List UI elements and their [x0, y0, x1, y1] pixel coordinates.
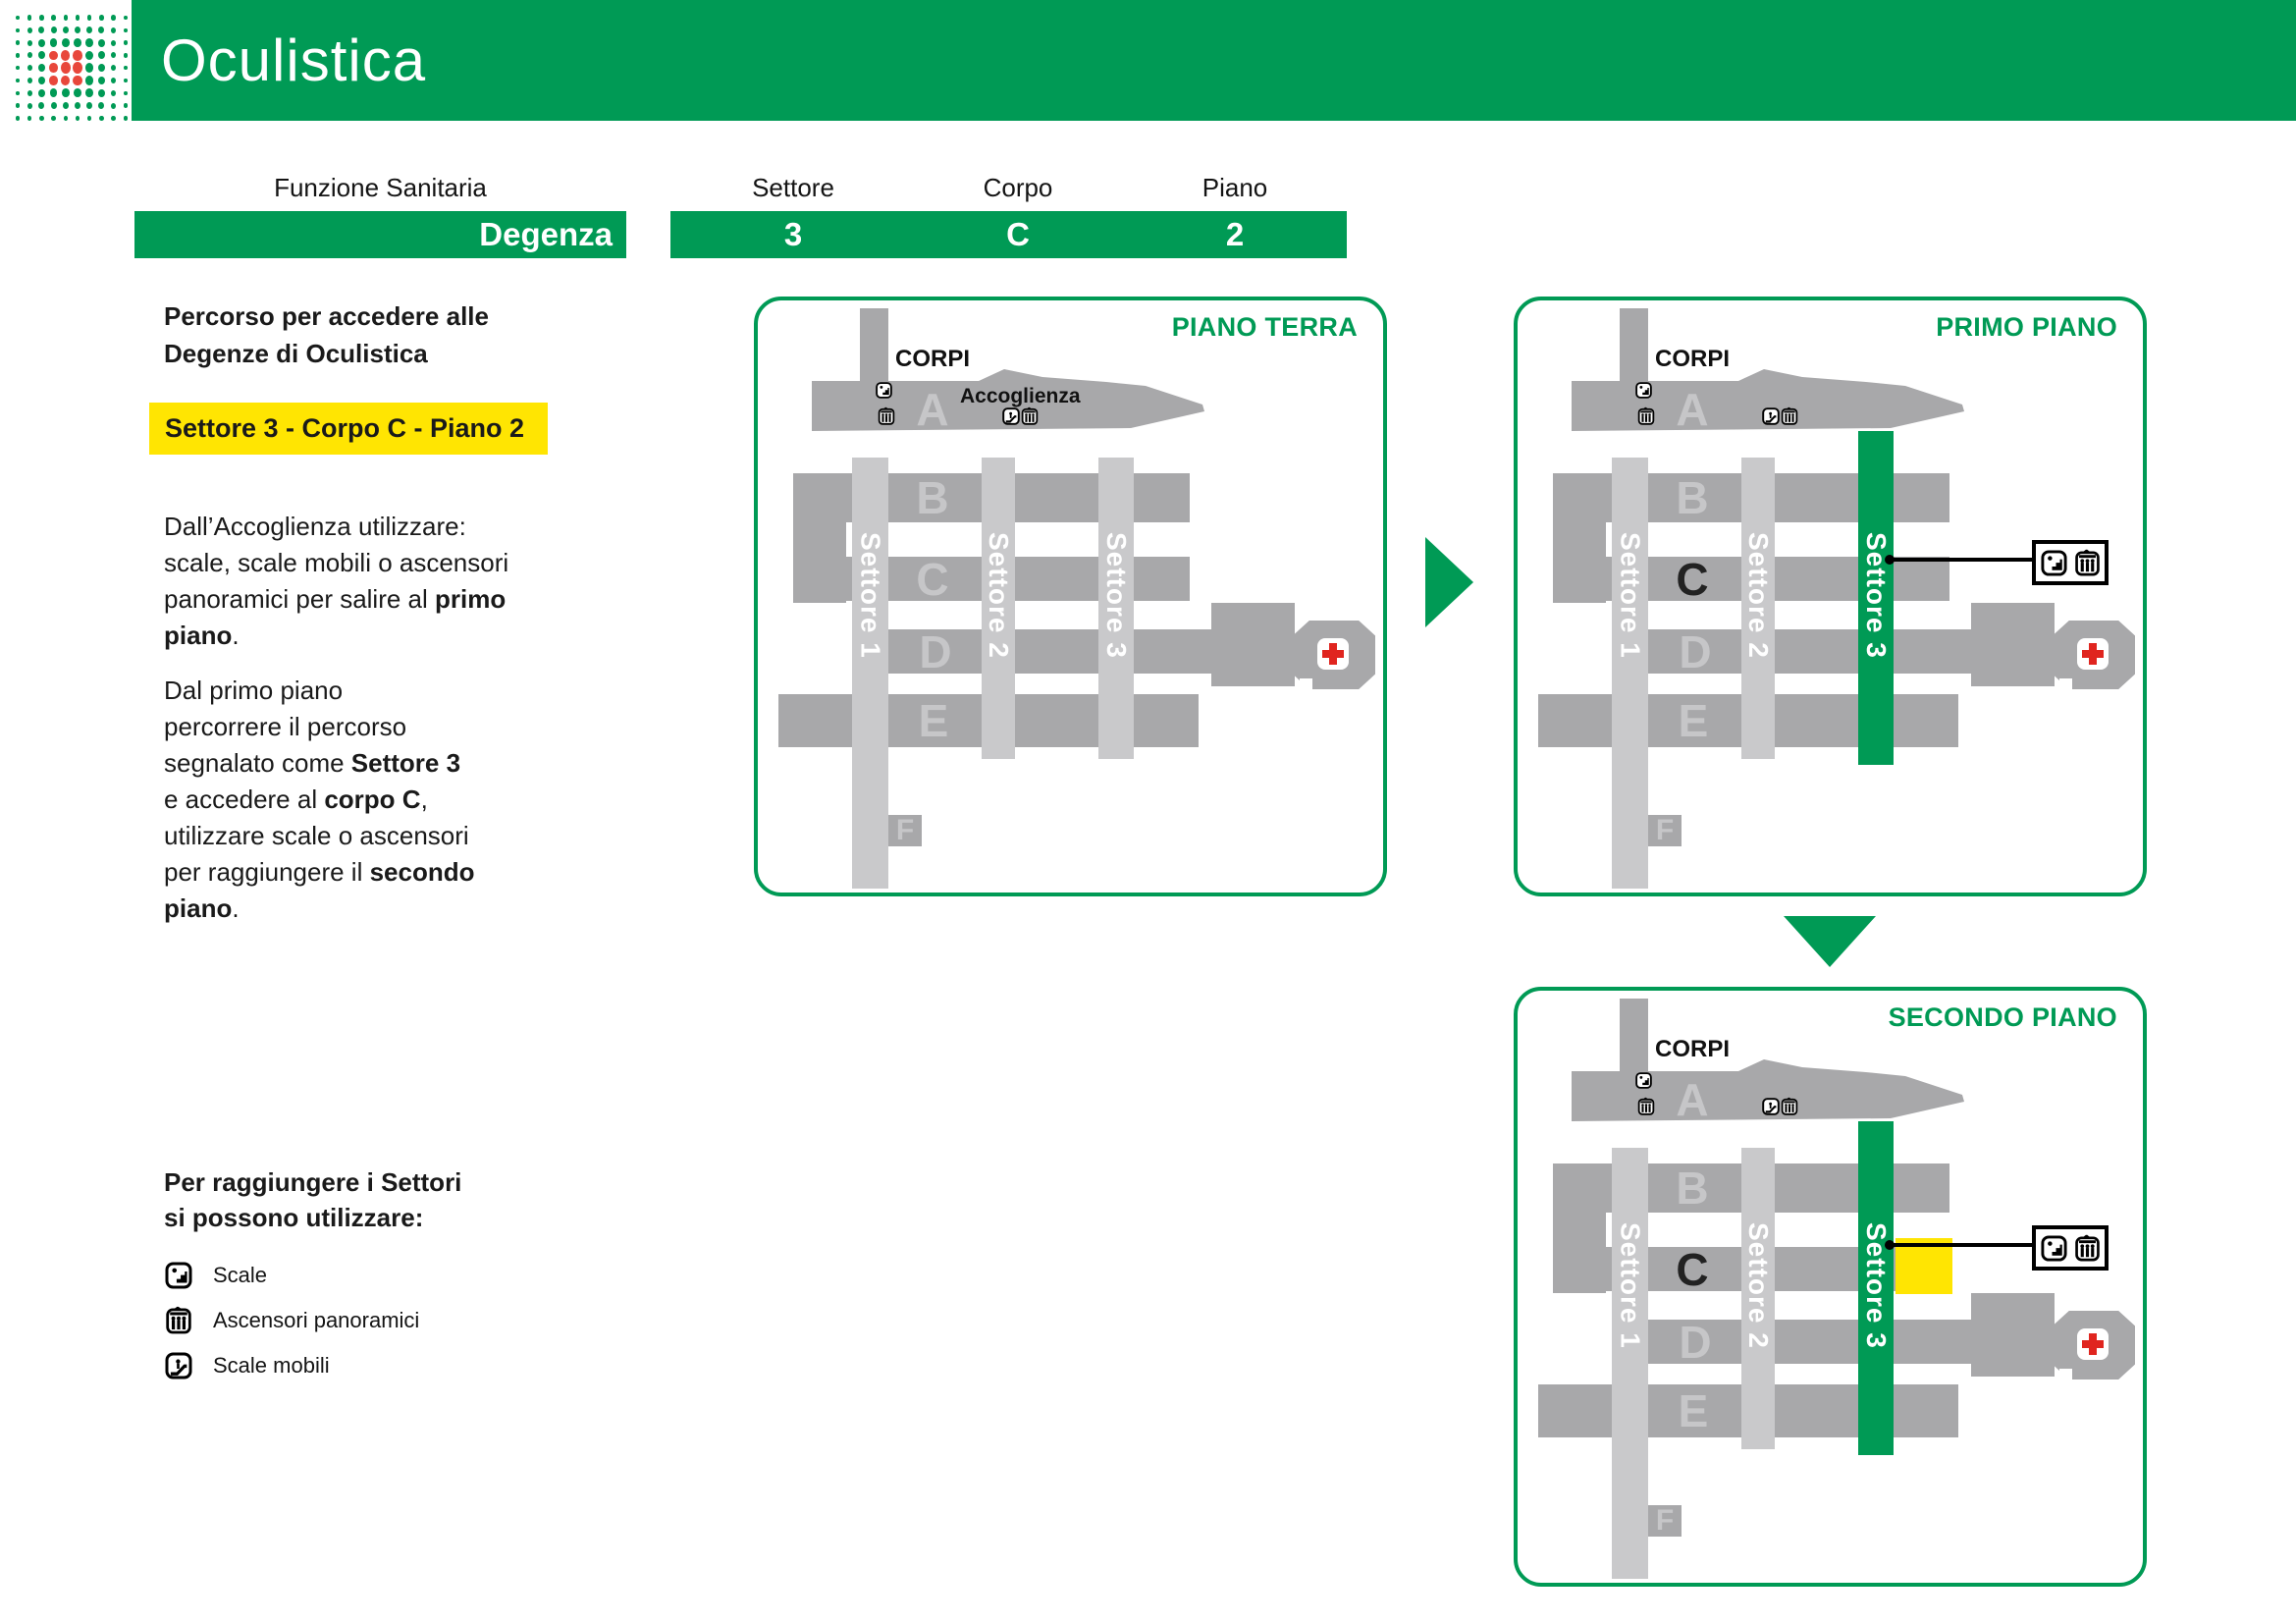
- sector-label: Settore 2: [983, 532, 1014, 659]
- floor-plan: Settore 1Settore 2Settore 3FABCDECORPI: [1518, 300, 2143, 893]
- floor-column-header: Piano: [1137, 173, 1333, 203]
- floor-panel-secondo-piano: Settore 1Settore 2Settore 3FABCDECORPI S…: [1514, 987, 2147, 1587]
- logo-green-dot: [111, 40, 116, 46]
- sector-value: 3: [695, 211, 891, 258]
- panoramic-elevator-icon: [1021, 406, 1039, 426]
- emergency-wing-notch: [2059, 678, 2072, 689]
- logo-green-dot: [51, 27, 57, 33]
- logo-green-dot: [124, 40, 128, 44]
- corpo-c-letter: C: [1665, 1247, 1720, 1291]
- corpo-a-letter: A: [905, 385, 960, 434]
- logo-green-dot: [16, 53, 20, 57]
- escalator-icon: [164, 1351, 193, 1380]
- corpo-b-letter: B: [1665, 1163, 1720, 1213]
- logo-green-dot: [16, 16, 20, 20]
- logo-green-dot: [98, 39, 105, 47]
- panoramic-elevator-icon: [1637, 1097, 1655, 1116]
- legend: Scale Ascensori panoramici Scale mobili: [164, 1261, 419, 1396]
- logo-green-dot: [85, 88, 93, 97]
- logo-green-dot: [39, 15, 44, 20]
- logo-green-dot: [39, 116, 44, 121]
- logo-green-dot: [111, 90, 116, 96]
- logo-green-dot: [98, 102, 104, 109]
- sector-strip-label: Settore 2: [1741, 467, 1775, 723]
- corpo-f-letter: F: [1648, 815, 1682, 846]
- corpo-a-letter: A: [1665, 1075, 1720, 1124]
- floor-plan: Settore 1Settore 2Settore 3FABCDECORPI: [1518, 991, 2143, 1583]
- logo-green-dot: [16, 66, 20, 70]
- logo-green-dot: [124, 91, 128, 95]
- emergency-wing-notch: [2059, 1369, 2072, 1380]
- panoramic-elevator-icon: [2074, 549, 2101, 577]
- logo-red-dot: [73, 76, 81, 86]
- logo-green-dot: [16, 79, 20, 82]
- logo-red-dot: [61, 76, 70, 86]
- logo-green-dot: [38, 27, 44, 33]
- corpi-label: CORPI: [895, 346, 1013, 371]
- logo-green-dot: [50, 88, 58, 97]
- header-bar: Oculistica: [132, 0, 2296, 121]
- stairs-icon: [876, 381, 892, 400]
- corpo-f-letter: F: [1648, 1505, 1682, 1537]
- logo-green-dot: [76, 15, 80, 20]
- corpo-a-stem: [1620, 999, 1648, 1073]
- logo-green-dot: [111, 103, 116, 109]
- emergency-wing-notch: [1300, 678, 1312, 689]
- logo-green-dot: [99, 116, 104, 121]
- sector-strip-label: Settore 1: [1612, 467, 1648, 723]
- floor-title: SECONDO PIANO: [1889, 1002, 2117, 1033]
- corpo-d-letter: D: [908, 629, 963, 674]
- stairs-icon: [2041, 1234, 2067, 1263]
- sector-strip-label: Settore 1: [1612, 1158, 1648, 1413]
- sector-strip-label: Settore 1: [852, 467, 888, 723]
- logo-green-dot: [85, 51, 93, 61]
- logo-green-dot: [64, 15, 69, 20]
- logo-green-dot: [16, 103, 20, 107]
- logo-red-dot: [73, 62, 82, 74]
- logo-green-dot: [51, 15, 56, 20]
- logo-green-dot: [38, 89, 45, 97]
- logo-green-dot: [74, 88, 81, 97]
- sector-strip-label: Settore 3: [1098, 467, 1134, 723]
- emergency-wing-block: [1971, 603, 2055, 686]
- logo-green-dot: [27, 103, 32, 109]
- sector-label: Settore 2: [1742, 1222, 1774, 1349]
- red-cross-icon: [2077, 638, 2109, 670]
- logo-green-dot: [98, 51, 105, 59]
- emergency-wing-block: [1211, 603, 1295, 686]
- logo-green-dot: [98, 64, 105, 72]
- sector-label: Settore 2: [1742, 532, 1774, 659]
- logo-green-dot: [124, 79, 128, 82]
- logo-green-dot: [124, 28, 128, 32]
- legend-heading: Per raggiungere i Settori si possono uti…: [164, 1164, 461, 1235]
- corpo-e-letter: E: [1666, 694, 1721, 747]
- logo-green-dot: [50, 38, 58, 47]
- corpo-a-stem: [860, 308, 888, 383]
- panoramic-elevator-icon: [1637, 406, 1655, 426]
- logo-green-dot: [99, 15, 104, 20]
- function-column-header: Funzione Sanitaria: [134, 173, 626, 203]
- logo-green-dot: [27, 15, 32, 20]
- logo-green-dot: [111, 27, 116, 33]
- panoramic-elevator-icon: [164, 1306, 193, 1335]
- escalator-icon: [1762, 406, 1780, 426]
- corpi-label: CORPI: [1655, 346, 1773, 371]
- logo-green-dot: [27, 78, 32, 83]
- sector-strip-label: Settore 3: [1858, 467, 1894, 723]
- logo-red-dot: [49, 51, 57, 61]
- logo-green-dot: [87, 15, 92, 20]
- logo-green-dot: [63, 27, 69, 33]
- corpo-a-letter: A: [1665, 385, 1720, 434]
- sector-column-header: Settore: [695, 173, 891, 203]
- floor-panel-piano-terra: Settore 1Settore 2Settore 3FABCDECORPIAc…: [754, 297, 1387, 896]
- emergency-wing-block: [1971, 1293, 2055, 1377]
- logo-red-dot: [61, 62, 71, 74]
- logo-red-dot: [61, 50, 70, 61]
- logo-red-dot: [49, 63, 57, 73]
- logo-red-dot: [73, 50, 81, 61]
- callout-line: [1894, 1243, 2032, 1247]
- logo-green-dot: [111, 78, 116, 83]
- logo-green-dot: [16, 28, 20, 32]
- logo-green-dot: [38, 51, 45, 59]
- logo-green-dot: [27, 116, 32, 121]
- logo-green-dot: [62, 38, 70, 47]
- red-cross-icon: [1317, 638, 1349, 670]
- escalator-icon: [1002, 406, 1020, 426]
- logo-green-dot: [85, 63, 93, 73]
- logo-green-dot: [75, 102, 80, 109]
- logo-green-dot: [86, 27, 92, 33]
- panoramic-elevator-icon: [878, 406, 895, 426]
- corpo-f-letter: F: [888, 815, 922, 846]
- logo-green-dot: [111, 116, 116, 121]
- logo-green-dot: [62, 88, 70, 97]
- logo-green-dot: [124, 16, 128, 20]
- callout-access-box: [2032, 1225, 2109, 1271]
- floor-title: PRIMO PIANO: [1936, 312, 2117, 343]
- logo-green-dot: [16, 40, 20, 44]
- logo-green-dot: [51, 102, 57, 109]
- logo-green-dot: [111, 15, 116, 20]
- logo-green-dot: [38, 102, 44, 109]
- logo-green-dot: [85, 38, 93, 47]
- logo-green-dot: [87, 116, 92, 121]
- sector-label: Settore 3: [1860, 532, 1892, 659]
- page-title: Oculistica: [132, 27, 426, 94]
- logo-red-dot: [49, 76, 57, 85]
- sector-label: Settore 1: [1615, 532, 1646, 659]
- logo-green-dot: [85, 76, 93, 85]
- stairs-icon: [164, 1261, 193, 1290]
- floor-panel-primo-piano: Settore 1Settore 2Settore 3FABCDECORPI P…: [1514, 297, 2147, 896]
- logo-green-dot: [124, 66, 128, 70]
- escalator-icon: [1762, 1097, 1780, 1116]
- logo-green-dot: [64, 116, 69, 121]
- corpo-e-letter: E: [906, 694, 961, 747]
- corpo-b-letter: B: [905, 473, 960, 522]
- logo-green-dot: [98, 89, 105, 97]
- next-floor-arrow-icon: [1425, 537, 1473, 627]
- accoglienza-label: Accoglienza: [960, 385, 1117, 408]
- logo-green-dot: [27, 27, 32, 33]
- body-value: C: [920, 211, 1116, 258]
- logo-green-dot: [63, 102, 69, 109]
- corpo-c-letter: C: [1665, 557, 1720, 601]
- logo-green-dot: [38, 39, 45, 47]
- logo-green-dot: [111, 52, 116, 58]
- logo-green-dot: [27, 65, 32, 71]
- logo-green-dot: [124, 116, 128, 120]
- logo-green-dot: [27, 90, 32, 96]
- logo-green-dot: [38, 77, 45, 84]
- logo-green-dot: [76, 116, 80, 121]
- callout-line: [1894, 558, 2032, 562]
- logo-green-dot: [27, 40, 32, 46]
- stairs-icon: [1635, 1071, 1652, 1090]
- hospital-dots-logo: [16, 14, 135, 124]
- corpo-d-letter: D: [1668, 629, 1723, 674]
- route-paragraph-1: Dall’Accoglienza utilizzare:scale, scale…: [164, 509, 508, 654]
- sector-strip-label: Settore 2: [1741, 1158, 1775, 1413]
- logo-green-dot: [74, 38, 81, 47]
- sector-label: Settore 1: [855, 532, 886, 659]
- floor-title: PIANO TERRA: [1172, 312, 1358, 343]
- sector-label: Settore 3: [1100, 532, 1132, 659]
- logo-green-dot: [86, 102, 92, 109]
- logo-green-dot: [38, 64, 45, 72]
- logo-green-dot: [27, 52, 32, 58]
- sector-label: Settore 1: [1615, 1222, 1646, 1349]
- route-heading: Percorso per accedere alle Degenze di Oc…: [164, 298, 489, 372]
- floor-plan: Settore 1Settore 2Settore 3FABCDECORPIAc…: [758, 300, 1383, 893]
- logo-green-dot: [16, 116, 20, 120]
- corpi-label: CORPI: [1655, 1036, 1773, 1061]
- function-value-bar: Degenza: [134, 211, 626, 258]
- body-column-header: Corpo: [920, 173, 1116, 203]
- wayfinding-sheet: Oculistica Funzione Sanitaria Settore Co…: [0, 0, 2296, 1623]
- floor-value: 2: [1137, 211, 1333, 258]
- logo-green-dot: [75, 27, 80, 33]
- route-paragraph-2: Dal primo pianopercorrere il percorsoseg…: [164, 673, 475, 927]
- panoramic-elevator-icon: [1781, 1097, 1798, 1116]
- sector-strip-label: Settore 2: [982, 467, 1015, 723]
- next-floor-down-arrow-icon: [1784, 916, 1876, 967]
- corpo-c-letter: C: [905, 557, 960, 601]
- logo-green-dot: [16, 91, 20, 95]
- legend-item-panoramic-elevator: Ascensori panoramici: [164, 1306, 419, 1335]
- legend-item-escalator: Scale mobili: [164, 1351, 419, 1380]
- logo-green-dot: [111, 65, 116, 71]
- corpo-b-letter: B: [1665, 473, 1720, 522]
- logo-green-dot: [51, 116, 56, 121]
- function-value: Degenza: [134, 211, 626, 258]
- red-cross-icon: [2077, 1328, 2109, 1360]
- logo-green-dot: [124, 53, 128, 57]
- sector-strip-label: Settore 3: [1858, 1158, 1894, 1413]
- panoramic-elevator-icon: [1781, 406, 1798, 426]
- corpo-d-letter: D: [1668, 1320, 1723, 1364]
- logo-green-dot: [98, 77, 105, 84]
- logo-green-dot: [98, 27, 104, 33]
- stairs-icon: [2041, 549, 2067, 577]
- corpo-a-stem: [1620, 308, 1648, 383]
- panoramic-elevator-icon: [2074, 1234, 2101, 1263]
- legend-item-stairs: Scale: [164, 1261, 419, 1290]
- callout-access-box: [2032, 540, 2109, 585]
- corpo-e-letter: E: [1666, 1384, 1721, 1437]
- logo-green-dot: [124, 103, 128, 107]
- route-highlight: Settore 3 - Corpo C - Piano 2: [149, 403, 548, 455]
- stairs-icon: [1635, 381, 1652, 400]
